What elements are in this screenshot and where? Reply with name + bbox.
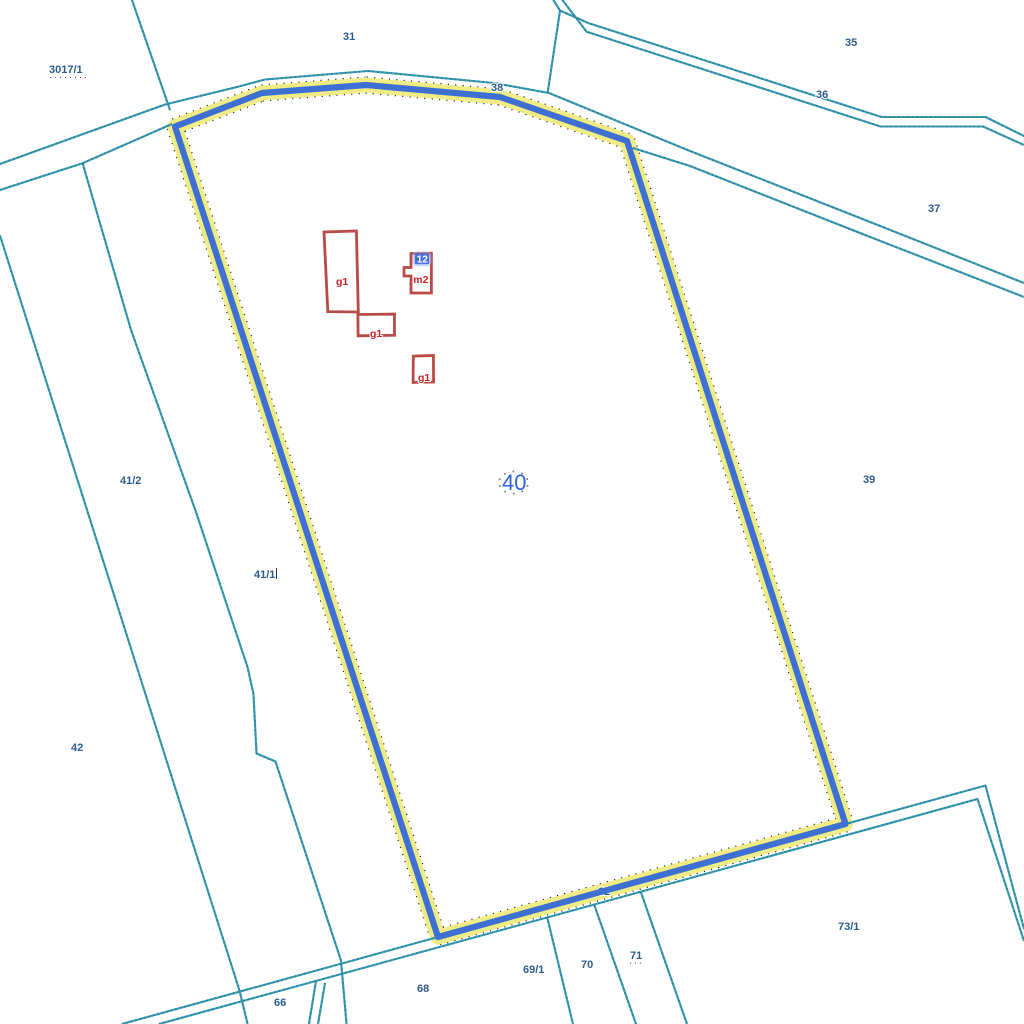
svg-text:36: 36 (816, 89, 828, 101)
svg-text:42: 42 (71, 742, 83, 754)
svg-text:66: 66 (274, 997, 286, 1009)
svg-text:31: 31 (343, 31, 355, 43)
svg-text:41/1: 41/1 (254, 569, 275, 581)
svg-text:35: 35 (845, 37, 857, 49)
svg-text:37: 37 (928, 203, 940, 215)
svg-text:g1: g1 (336, 276, 348, 288)
svg-text:73/1: 73/1 (838, 921, 859, 933)
svg-text:70: 70 (581, 959, 593, 971)
svg-text:39: 39 (863, 474, 875, 486)
svg-text:12: 12 (417, 254, 429, 265)
svg-text:38: 38 (491, 82, 503, 94)
svg-text:71: 71 (630, 950, 642, 962)
svg-text:41/2: 41/2 (120, 475, 141, 487)
svg-text:m2: m2 (413, 274, 428, 286)
svg-text:3017/1: 3017/1 (49, 64, 83, 76)
svg-text:69/1: 69/1 (523, 964, 544, 976)
svg-text:g1: g1 (370, 328, 382, 340)
svg-text:g1: g1 (418, 372, 430, 384)
svg-text:68: 68 (417, 983, 429, 995)
